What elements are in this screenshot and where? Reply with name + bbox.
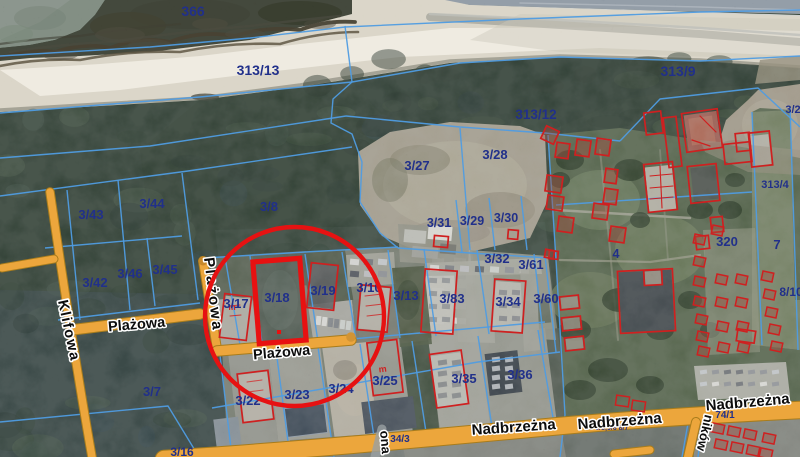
svg-text:7: 7 <box>773 237 780 252</box>
svg-text:3/18: 3/18 <box>264 290 289 305</box>
svg-text:3/36: 3/36 <box>507 367 532 382</box>
svg-text:313/13: 313/13 <box>237 62 280 78</box>
svg-text:313/9: 313/9 <box>660 63 695 79</box>
svg-text:313/12: 313/12 <box>515 107 556 122</box>
svg-text:3/46: 3/46 <box>117 266 142 281</box>
svg-text:3/19: 3/19 <box>310 283 335 298</box>
svg-text:3/17: 3/17 <box>223 296 248 311</box>
svg-text:3/32: 3/32 <box>484 251 509 266</box>
svg-text:3/44: 3/44 <box>139 196 165 211</box>
svg-text:3/43: 3/43 <box>78 207 103 222</box>
svg-text:366: 366 <box>181 3 205 19</box>
svg-text:3/83: 3/83 <box>439 291 464 306</box>
svg-text:3/61: 3/61 <box>518 257 543 272</box>
svg-text:3/31: 3/31 <box>427 216 451 230</box>
svg-text:3/30: 3/30 <box>494 211 518 225</box>
svg-text:3/25: 3/25 <box>372 373 397 388</box>
svg-text:ona: ona <box>377 430 394 455</box>
svg-text:3/16: 3/16 <box>170 445 194 457</box>
svg-text:313/4: 313/4 <box>761 179 789 191</box>
svg-text:3/8: 3/8 <box>260 199 278 214</box>
svg-text:3/34: 3/34 <box>495 294 521 309</box>
svg-text:3/35: 3/35 <box>451 371 476 386</box>
svg-text:4: 4 <box>613 247 620 261</box>
svg-text:8/10: 8/10 <box>779 285 800 299</box>
svg-text:3/45: 3/45 <box>152 262 177 277</box>
svg-text:3/27: 3/27 <box>404 158 429 173</box>
svg-text:3/60: 3/60 <box>533 291 558 306</box>
svg-text:3/29: 3/29 <box>460 214 484 228</box>
svg-text:3/7: 3/7 <box>143 384 161 399</box>
svg-text:320: 320 <box>716 234 738 249</box>
svg-text:3/2: 3/2 <box>785 104 800 116</box>
svg-text:3/13: 3/13 <box>393 288 418 303</box>
svg-text:3/42: 3/42 <box>82 275 107 290</box>
svg-text:3/28: 3/28 <box>482 147 507 162</box>
svg-text:3/23: 3/23 <box>284 387 309 402</box>
